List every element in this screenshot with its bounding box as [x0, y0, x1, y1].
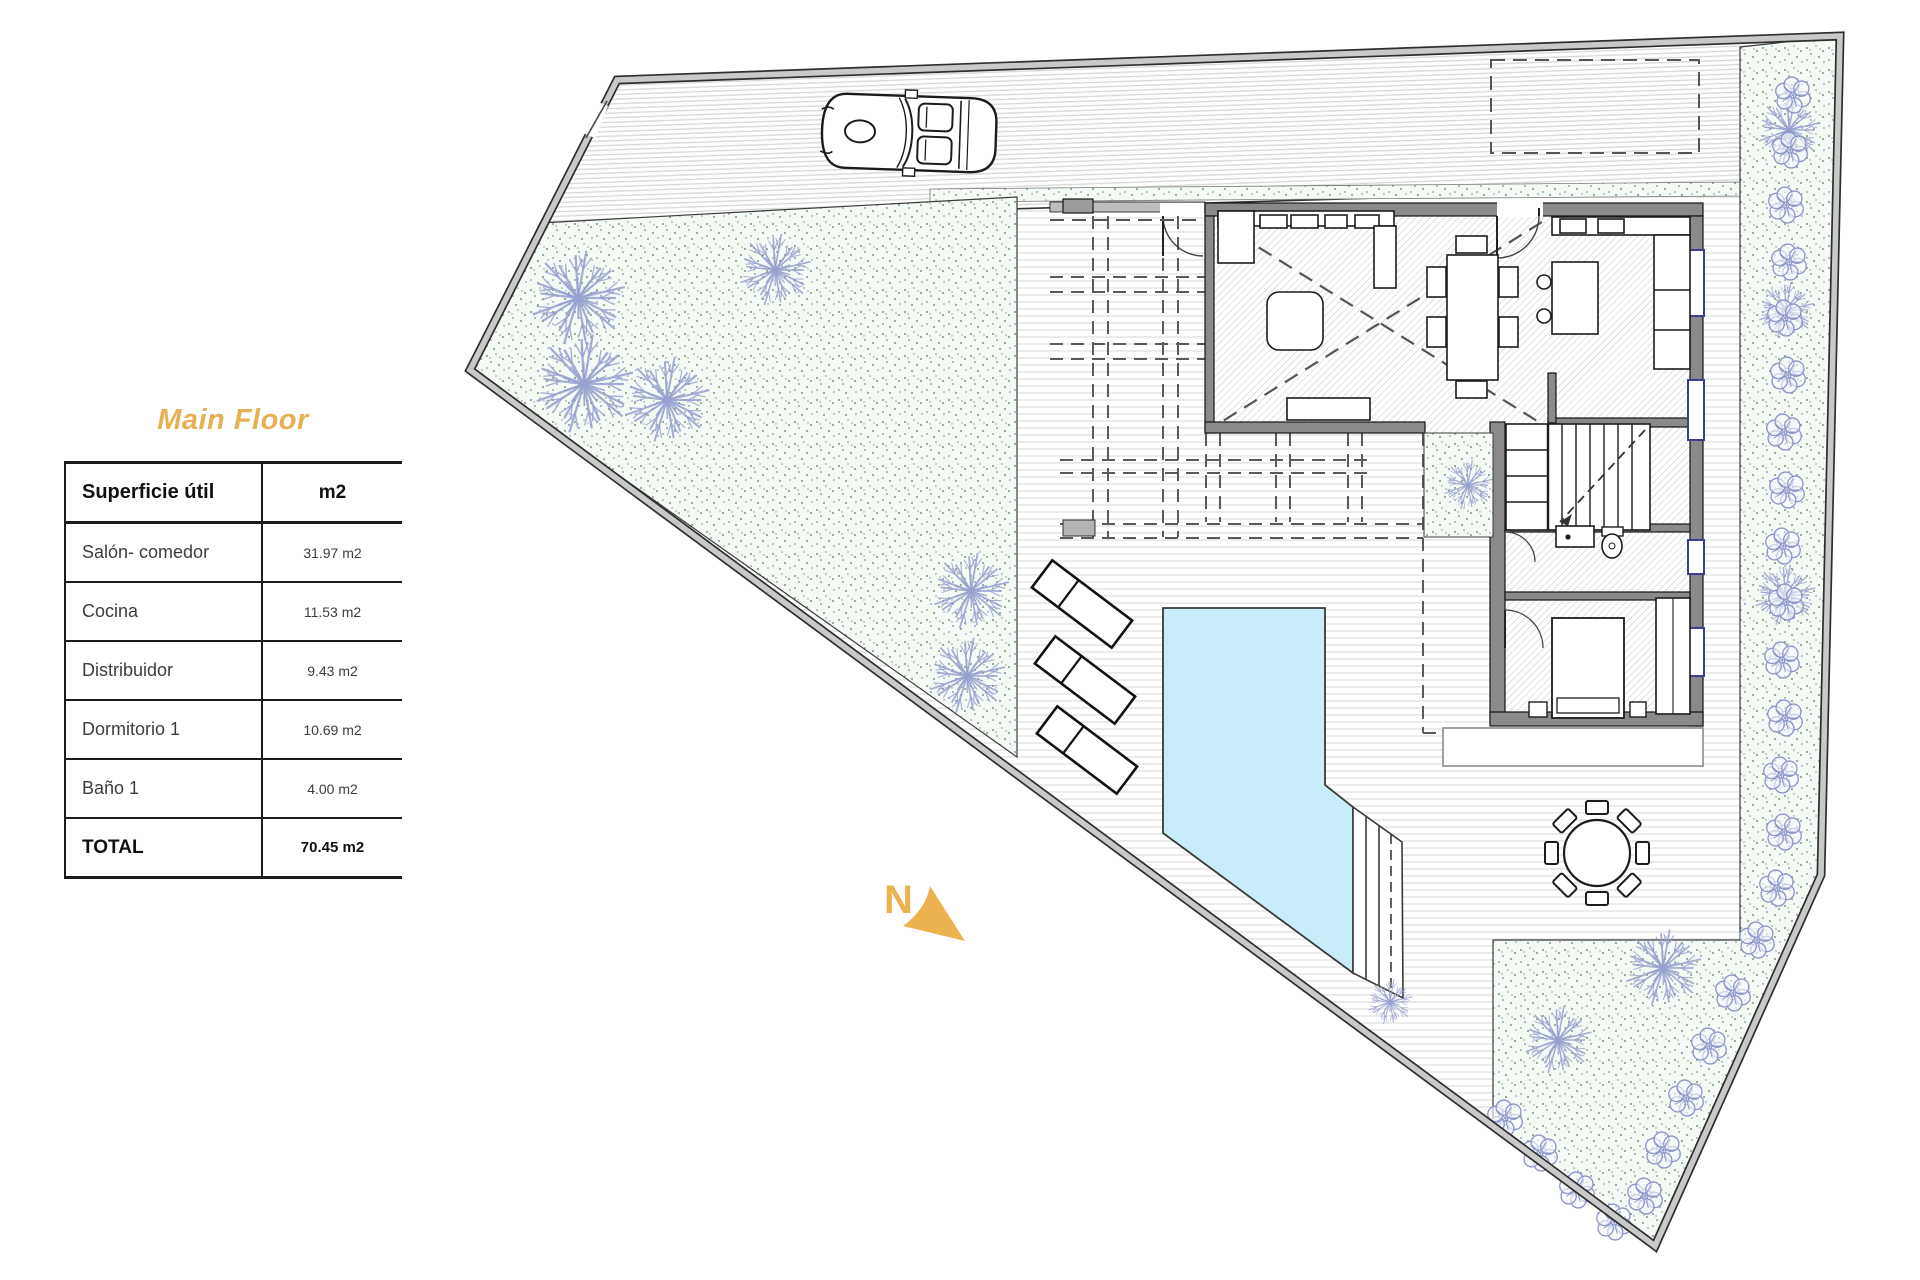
room-label: Distribuidor — [65, 641, 262, 700]
room-area: 4.00 m2 — [262, 759, 402, 818]
table-body: Salón- comedor 31.97 m2 Cocina 11.53 m2 … — [65, 523, 402, 819]
compass-label: N — [884, 878, 913, 922]
room-area: 11.53 m2 — [262, 582, 402, 641]
patio-chair — [1586, 801, 1608, 814]
room-label: Salón- comedor — [65, 523, 262, 583]
dining-chair — [1499, 267, 1518, 297]
north-arrow: N — [884, 878, 965, 941]
table-header-row: Superficie útil m2 — [65, 463, 402, 523]
sofa-cushion — [1325, 215, 1347, 228]
car-seat — [918, 103, 953, 131]
kitchen-stub-wall — [1548, 373, 1556, 423]
stool — [1537, 309, 1551, 323]
toilet — [1602, 534, 1622, 558]
patio-chair — [1586, 892, 1608, 905]
nightstand — [1529, 702, 1547, 717]
sofa-return — [1374, 226, 1396, 288]
window — [1688, 540, 1704, 574]
table-row: Dormitorio 1 10.69 m2 — [65, 700, 402, 759]
legend-panel: Main Floor Superficie útil m2 Salón- com… — [64, 404, 402, 879]
bed-pillows — [1557, 698, 1619, 713]
table-row: Distribuidor 9.43 m2 — [65, 641, 402, 700]
room-area: 31.97 m2 — [262, 523, 402, 583]
table-row: Baño 1 4.00 m2 — [65, 759, 402, 818]
dining-chair — [1456, 381, 1487, 398]
car-mirror — [903, 168, 915, 176]
coffee-table — [1267, 292, 1323, 350]
table-total-row: TOTAL 70.45 m2 — [65, 818, 402, 878]
car-mirror — [905, 90, 917, 98]
sink-kitchen — [1598, 219, 1624, 233]
terrace-apron — [1443, 728, 1703, 766]
room-area: 9.43 m2 — [262, 641, 402, 700]
dining-table — [1447, 255, 1498, 380]
stairs — [1506, 424, 1650, 530]
tv-bench — [1287, 398, 1370, 420]
room-label: Cocina — [65, 582, 262, 641]
table-row: Salón- comedor 31.97 m2 — [65, 523, 402, 583]
pergola-pillar — [1063, 520, 1095, 536]
dining-chair — [1427, 317, 1446, 347]
dining-chair — [1499, 317, 1518, 347]
sofa-chaise — [1218, 211, 1254, 263]
sofa-cushion — [1291, 215, 1318, 228]
window — [1688, 380, 1704, 440]
table-row: Cocina 11.53 m2 — [65, 582, 402, 641]
west-wall — [1205, 216, 1214, 433]
table-header-unit: m2 — [262, 463, 402, 523]
area-table: Superficie útil m2 Salón- comedor 31.97 … — [64, 461, 402, 879]
nightstand — [1630, 702, 1646, 717]
cooktop — [1560, 219, 1586, 233]
legend-title: Main Floor — [64, 404, 402, 437]
room-label: Baño 1 — [65, 759, 262, 818]
table-header-label: Superficie útil — [65, 463, 262, 523]
total-value: 70.45 m2 — [262, 818, 402, 878]
stool — [1537, 275, 1551, 289]
floor-plan-page: N Main Floor Superficie útil m2 Salón- c… — [0, 0, 1920, 1280]
bath-sink — [1556, 526, 1594, 547]
sofa-cushion — [1260, 215, 1287, 228]
car — [820, 87, 998, 179]
kitchen-island — [1552, 262, 1598, 334]
patio-chair — [1545, 842, 1558, 864]
dining-chair — [1456, 236, 1487, 253]
car-seat — [917, 136, 952, 164]
kitchen-counter-side — [1654, 235, 1690, 369]
dining-chair — [1427, 267, 1446, 297]
room-area: 10.69 m2 — [262, 700, 402, 759]
room-label: Dormitorio 1 — [65, 700, 262, 759]
south-wall-living — [1205, 422, 1425, 433]
total-label: TOTAL — [65, 818, 262, 878]
terrace-pillar — [1063, 199, 1093, 213]
patio-chair — [1636, 842, 1649, 864]
patio-table-top — [1564, 820, 1630, 886]
